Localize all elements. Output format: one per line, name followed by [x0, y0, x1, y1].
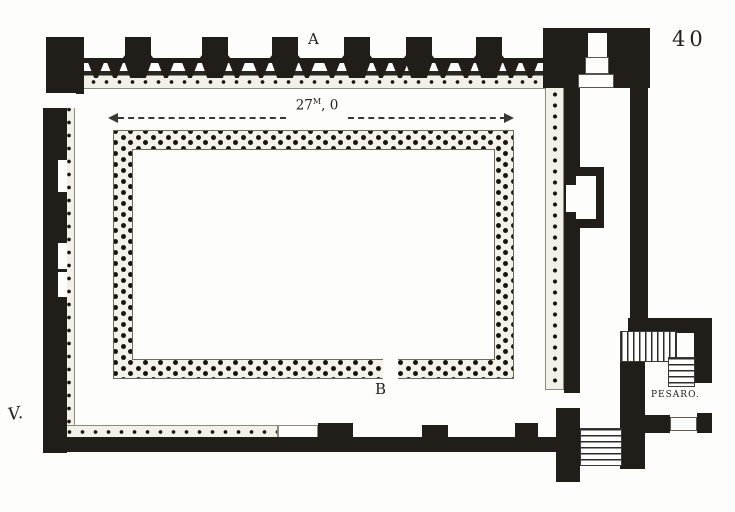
label-portico: A — [308, 30, 319, 48]
door-northeast-1 — [588, 33, 607, 57]
stairs-south — [580, 428, 622, 466]
pier-south-3 — [515, 423, 538, 437]
wall-east-inner — [564, 80, 580, 393]
courtyard-opening — [383, 356, 398, 381]
corner-pier-northwest — [46, 37, 84, 94]
courtyard-colonnade-band — [113, 130, 514, 379]
window-slit-west-2 — [58, 243, 67, 269]
door-northeast-3 — [578, 74, 614, 88]
courtyard — [132, 149, 495, 360]
annex-wall-right — [694, 330, 712, 383]
stairs-annex-right — [668, 357, 695, 387]
door-northeast-2 — [585, 57, 609, 74]
annex-wall-mid-right — [697, 413, 712, 433]
door-annex — [670, 417, 697, 431]
annex-wall-mid-left — [643, 415, 670, 433]
dimension-value: 27 — [296, 98, 313, 114]
wall-east-lower — [556, 408, 580, 482]
dimension-label: 27M, 0 — [286, 97, 348, 114]
label-annex: PESARO. — [651, 390, 700, 400]
door-east-lower — [558, 393, 580, 408]
window-slit-west-1 — [58, 160, 67, 192]
dimension-arrow-right-icon — [504, 113, 514, 123]
niche-interior — [576, 176, 596, 219]
dimension-arrow-left-icon — [108, 113, 118, 123]
pier-south-1 — [318, 423, 353, 437]
pesaro-floor-plan: A B 40 PESARO. 27M, 0 V. — [0, 0, 735, 512]
dimension-line-right — [348, 117, 506, 119]
portico-lining-east — [545, 77, 564, 390]
wall-south — [46, 437, 557, 452]
window-slit-west-3 — [58, 272, 67, 297]
annex-wall-left — [620, 362, 645, 469]
niche-opening — [566, 185, 576, 212]
wall-east-outer — [630, 88, 648, 333]
label-courtyard-entrance: B — [375, 380, 386, 398]
engraver-signature: V. — [6, 403, 24, 425]
dimension-line-left — [118, 117, 286, 119]
dimension-unit: M — [313, 97, 321, 106]
pier-south-2 — [422, 425, 448, 437]
plate-number: 40 — [672, 27, 707, 51]
dimension-remainder: , 0 — [321, 98, 338, 114]
door-northwest — [43, 93, 76, 108]
